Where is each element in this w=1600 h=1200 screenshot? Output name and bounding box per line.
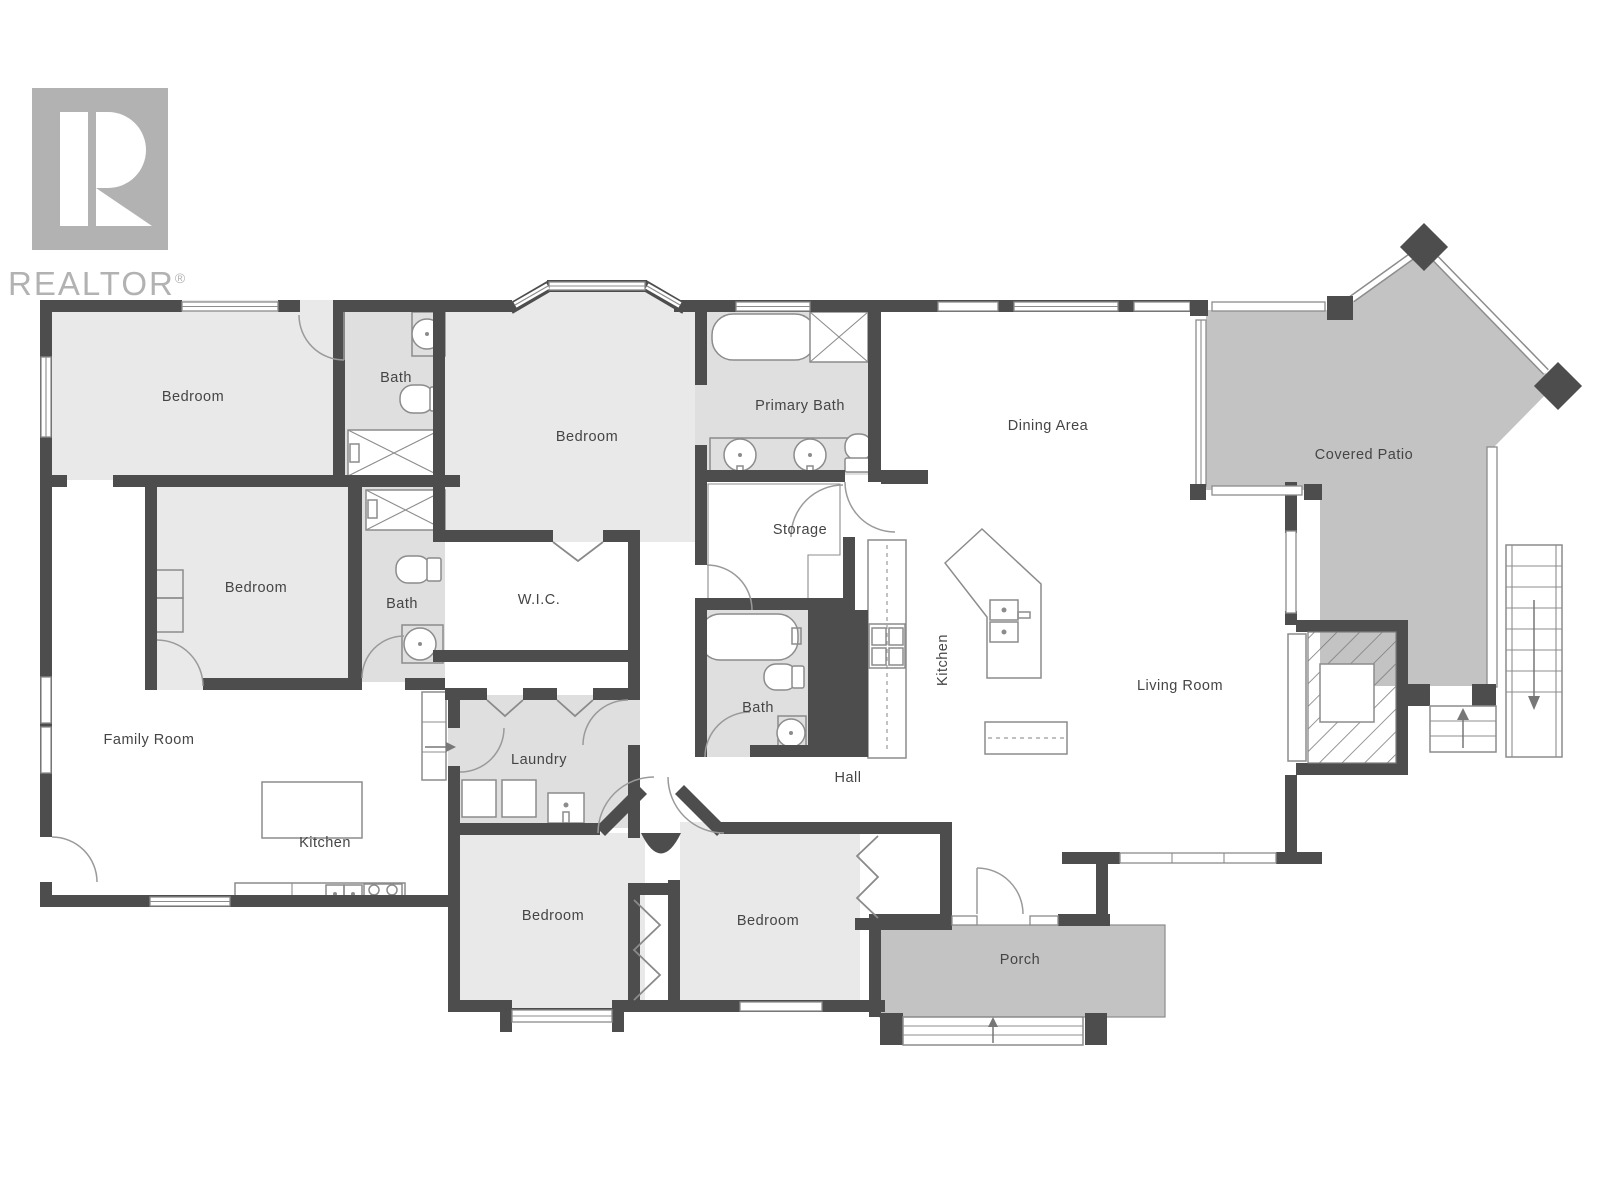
hall-bath-toilet-icon <box>764 664 804 690</box>
label-kitchen-main: Kitchen <box>936 634 951 686</box>
label-bath-mid-left: Bath <box>386 597 418 612</box>
porch-floor <box>880 925 1165 1017</box>
porch-steps <box>903 1017 1083 1045</box>
label-kitchen-family: Kitchen <box>299 836 351 851</box>
hall-bath-tub-icon <box>700 614 801 660</box>
laundry-sink-icon <box>548 793 584 823</box>
kitchen-island-main <box>945 529 1041 678</box>
label-bath-hall: Bath <box>742 701 774 716</box>
kitchen-island-family <box>262 782 362 838</box>
stairs-right <box>1506 545 1562 757</box>
label-bath-top: Bath <box>380 371 412 386</box>
label-bedroom-top-left: Bedroom <box>162 390 224 405</box>
label-bedroom-mid-left: Bedroom <box>225 581 287 596</box>
label-living-room: Living Room <box>1137 679 1223 694</box>
kitchen-counter-main <box>868 540 906 758</box>
label-dining-area: Dining Area <box>1008 419 1088 434</box>
washer-icon <box>462 780 496 817</box>
primary-shower-icon <box>810 312 868 362</box>
label-bedroom-bottom-left: Bedroom <box>522 909 584 924</box>
kitchen-peninsula <box>985 722 1067 754</box>
door-family-room-left <box>52 837 97 882</box>
label-storage: Storage <box>773 523 827 538</box>
fireplace-icon <box>1288 632 1396 763</box>
patio-steps <box>1430 706 1496 752</box>
pantry-cabinet <box>422 692 446 780</box>
label-primary-bath: Primary Bath <box>755 399 845 414</box>
bifold-wic <box>553 542 603 561</box>
primary-tub-icon <box>712 314 823 360</box>
door-entry-porch <box>977 868 1023 914</box>
label-family-room: Family Room <box>104 733 195 748</box>
label-laundry: Laundry <box>511 753 567 768</box>
label-wic: W.I.C. <box>518 593 560 608</box>
bedroom-center-floor <box>440 300 707 542</box>
dryer-icon <box>502 780 536 817</box>
label-covered-patio: Covered Patio <box>1315 448 1413 463</box>
bath-mid-toilet-icon <box>396 556 441 583</box>
storage-outline <box>708 484 840 604</box>
shower-top-icon <box>348 430 440 476</box>
label-porch: Porch <box>1000 953 1040 968</box>
label-hall: Hall <box>835 771 862 786</box>
door-kitchen-hall <box>845 482 895 532</box>
bifold-closet-right <box>857 836 878 918</box>
primary-toilet-icon <box>845 434 872 472</box>
label-bedroom-center: Bedroom <box>556 430 618 445</box>
floor-plan <box>0 0 1600 1200</box>
floorplan-page: REALTOR® <box>0 0 1600 1200</box>
label-bedroom-bottom-right: Bedroom <box>737 914 799 929</box>
